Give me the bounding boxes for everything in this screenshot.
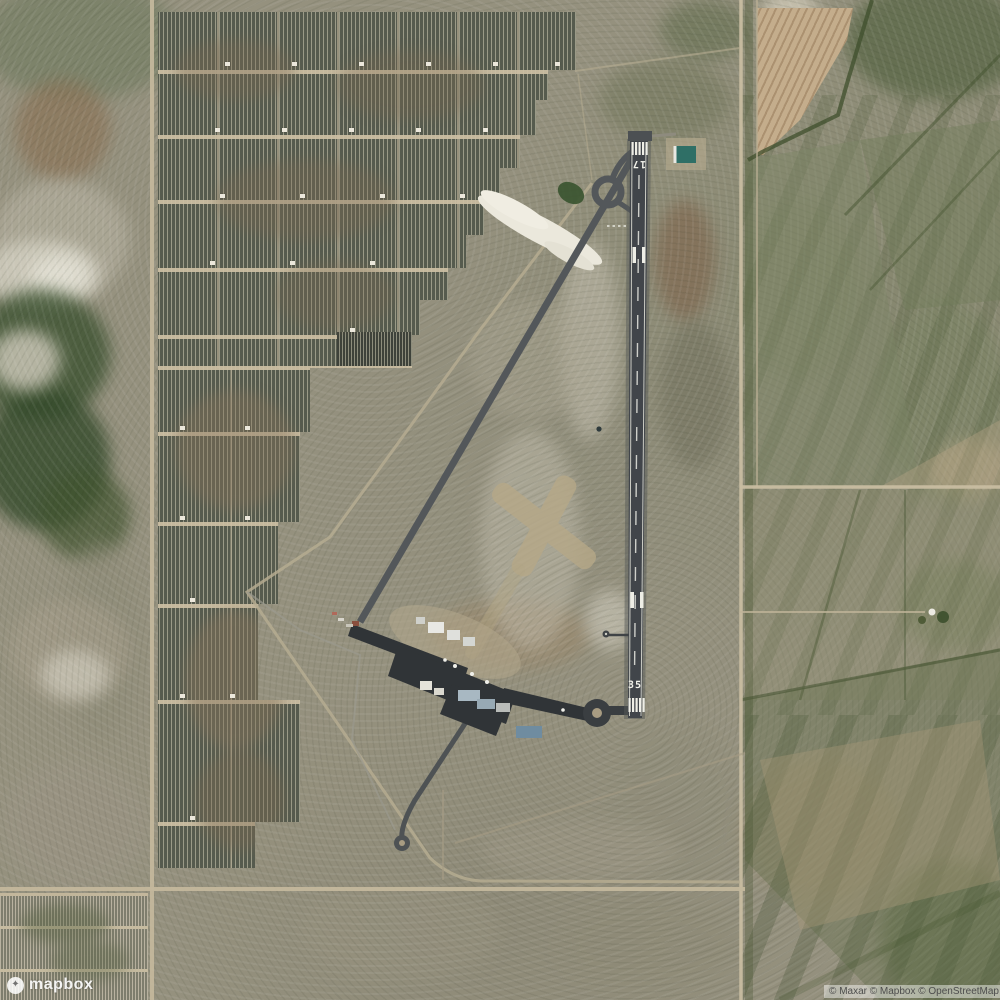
mapbox-logo-text: mapbox: [29, 976, 93, 994]
hangar: [463, 637, 475, 646]
hangar: [416, 617, 425, 624]
water-tank: [596, 426, 601, 431]
attribution-text: © Maxar © Mapbox © OpenStreetMap: [829, 986, 999, 997]
mapbox-logo-icon: ✦: [7, 977, 24, 994]
runway-number-17: 17: [630, 158, 648, 168]
farmhouse: [929, 609, 936, 616]
building-driveway: [652, 134, 676, 136]
blue-roof-building: [458, 690, 480, 701]
map-attribution[interactable]: © Maxar © Mapbox © OpenStreetMap: [824, 985, 1000, 998]
parked-aircraft: [453, 664, 457, 668]
road-southeast: [455, 753, 745, 843]
parked-aircraft: [561, 708, 565, 712]
road-top-fence: [575, 48, 740, 71]
dirt-cross-mark: [472, 472, 600, 652]
red-roof-shed: [352, 621, 359, 626]
satellite-map-canvas[interactable]: 17 35 ✦ mapbox © Maxar © Mapbox © OpenSt…: [0, 0, 1000, 1000]
diagonal-taxiway: [360, 150, 637, 622]
road-apron-access: [247, 592, 395, 830]
blue-roof-building: [477, 699, 495, 709]
building: [434, 688, 444, 695]
farm-trees: [918, 616, 926, 624]
parked-aircraft: [443, 658, 447, 662]
runway-top-stub: [628, 131, 652, 141]
vehicle: [338, 618, 344, 621]
runway-number-35: 35: [626, 681, 644, 691]
map-features-layer: [0, 0, 1000, 1000]
hangar: [447, 630, 460, 640]
parked-aircraft: [470, 672, 474, 676]
vegetation-patch: [554, 177, 588, 208]
old-taxiway: [402, 716, 470, 840]
teal-roof-building: [676, 146, 696, 163]
building: [420, 681, 432, 690]
farm-fields: [745, 120, 1000, 1000]
parked-aircraft: [485, 680, 489, 684]
runway: [596, 131, 652, 719]
building: [496, 703, 510, 712]
vehicle: [346, 624, 353, 627]
mapbox-logo[interactable]: ✦ mapbox: [7, 976, 93, 994]
vehicle: [332, 612, 337, 615]
farm-trees: [937, 611, 949, 623]
hangar: [428, 622, 444, 633]
road-fence: [578, 74, 592, 180]
